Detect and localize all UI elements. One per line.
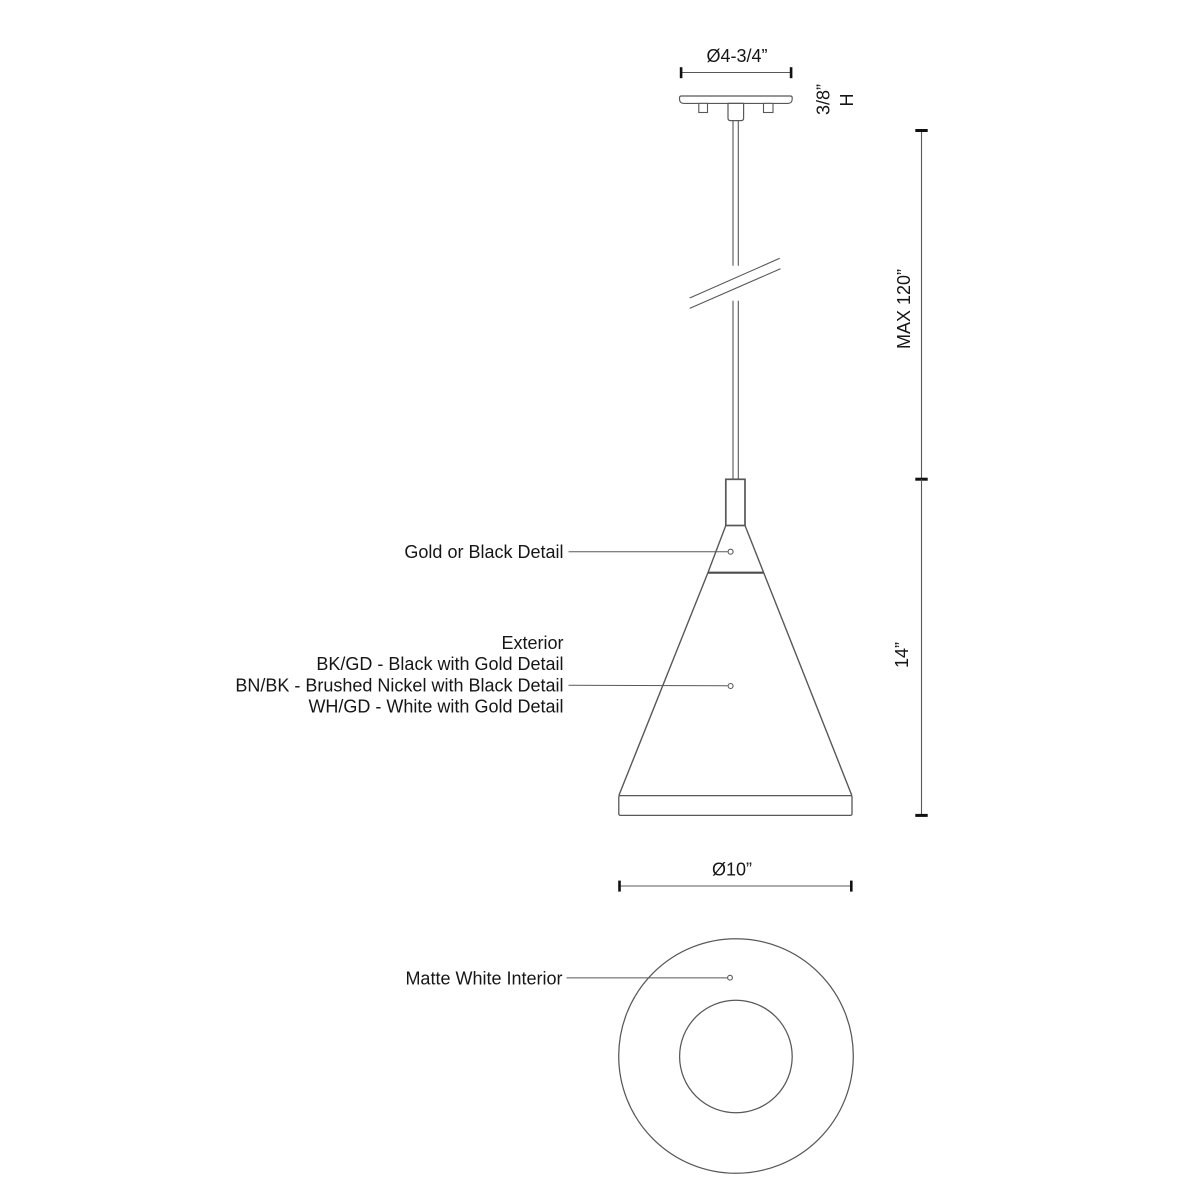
svg-text:Ø4-3/4”: Ø4-3/4” [706, 46, 767, 66]
svg-text:Gold or Black Detail: Gold or Black Detail [404, 542, 563, 562]
svg-text:MAX 120”: MAX 120” [894, 269, 914, 349]
svg-text:WH/GD - White with Gold Detail: WH/GD - White with Gold Detail [308, 696, 563, 716]
svg-text:BK/GD - Black with Gold Detail: BK/GD - Black with Gold Detail [316, 654, 563, 674]
svg-text:Exterior: Exterior [501, 633, 563, 653]
svg-text:Ø10”: Ø10” [712, 859, 752, 879]
svg-text:H: H [837, 94, 857, 107]
svg-text:14”: 14” [892, 642, 912, 668]
svg-text:Matte White Interior: Matte White Interior [405, 968, 562, 988]
svg-text:3/8”: 3/8” [814, 84, 834, 115]
svg-text:BN/BK - Brushed Nickel with Bl: BN/BK - Brushed Nickel with Black Detail [235, 675, 563, 695]
